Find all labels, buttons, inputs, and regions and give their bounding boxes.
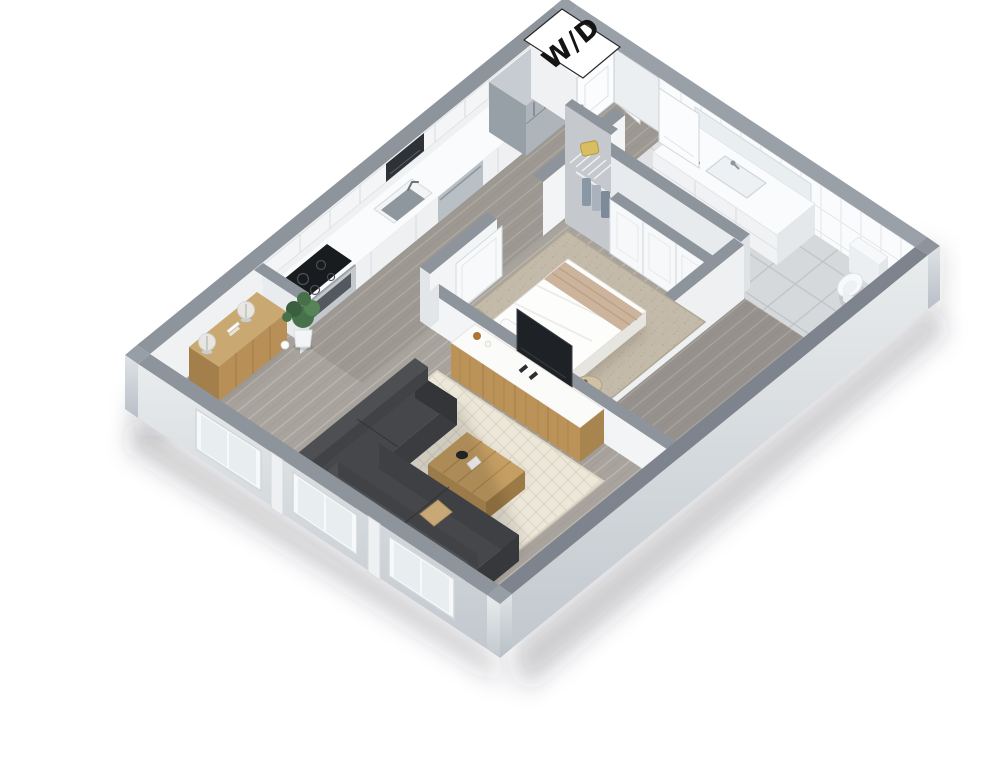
decanter: [473, 332, 481, 340]
floor-plan-canvas: W/D: [0, 0, 1000, 770]
hanging-clothes: [582, 178, 591, 206]
east-corner-face: [928, 246, 940, 309]
window-pier-2: [368, 516, 380, 580]
hall-wall-end: [420, 267, 430, 328]
south-corner-face-se: [500, 594, 512, 658]
candle: [485, 341, 491, 347]
window-pier-1: [271, 452, 283, 516]
west-corner-face: [125, 355, 138, 418]
closet-bag: [580, 140, 599, 156]
hanging-clothes: [601, 191, 610, 218]
hanging-clothes: [592, 185, 601, 211]
plant-pot: [294, 330, 312, 347]
south-corner-pillar: [487, 585, 512, 658]
isometric-floor-plan: W/D: [0, 0, 1000, 770]
south-corner-face-sw: [487, 595, 500, 658]
floor-vase: [281, 341, 289, 349]
